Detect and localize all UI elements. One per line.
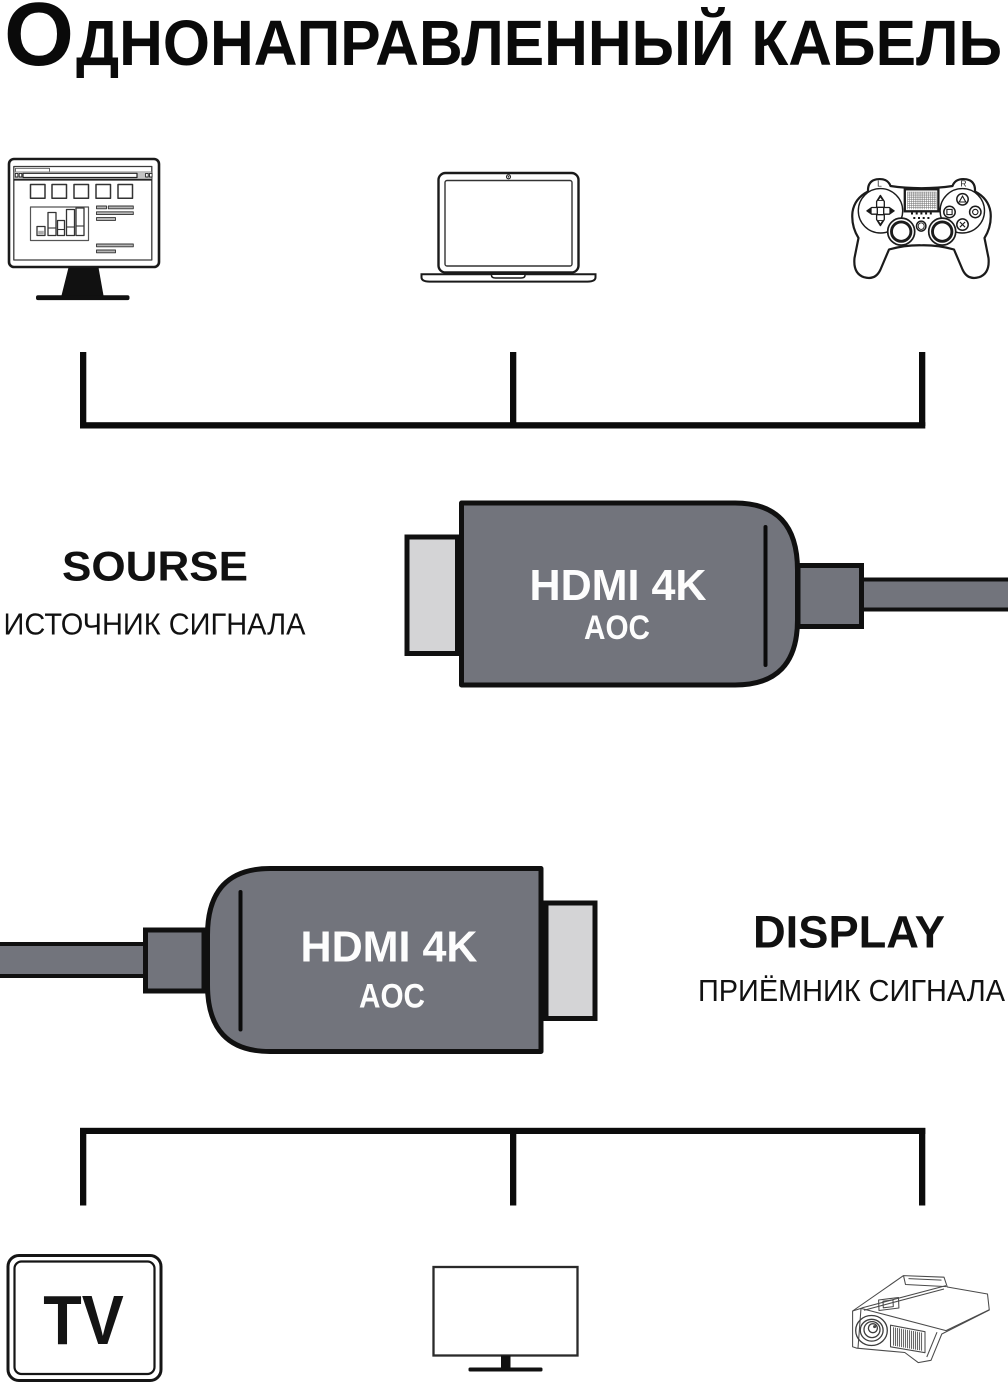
svg-text:HDMI 4K: HDMI 4K [301, 923, 478, 972]
svg-text:ДНОНАПРАВЛЕННЫЙ КАБЕЛЬ: ДНОНАПРАВЛЕННЫЙ КАБЕЛЬ [76, 6, 1002, 79]
svg-text:AOC: AOC [359, 978, 425, 1016]
svg-text:ИСТОЧНИК СИГНАЛА: ИСТОЧНИК СИГНАЛА [4, 607, 306, 642]
svg-text:R: R [960, 179, 966, 189]
svg-text:TV: TV [43, 1281, 124, 1359]
svg-text:SOURSE: SOURSE [62, 543, 248, 590]
svg-text:ПРИЁМНИК СИГНАЛА: ПРИЁМНИК СИГНАЛА [698, 973, 1005, 1008]
svg-text:HDMI 4K: HDMI 4K [530, 561, 707, 610]
svg-text:L: L [877, 179, 882, 189]
svg-text:О: О [4, 0, 74, 85]
svg-text:DISPLAY: DISPLAY [753, 907, 945, 958]
svg-text:AOC: AOC [584, 609, 650, 647]
